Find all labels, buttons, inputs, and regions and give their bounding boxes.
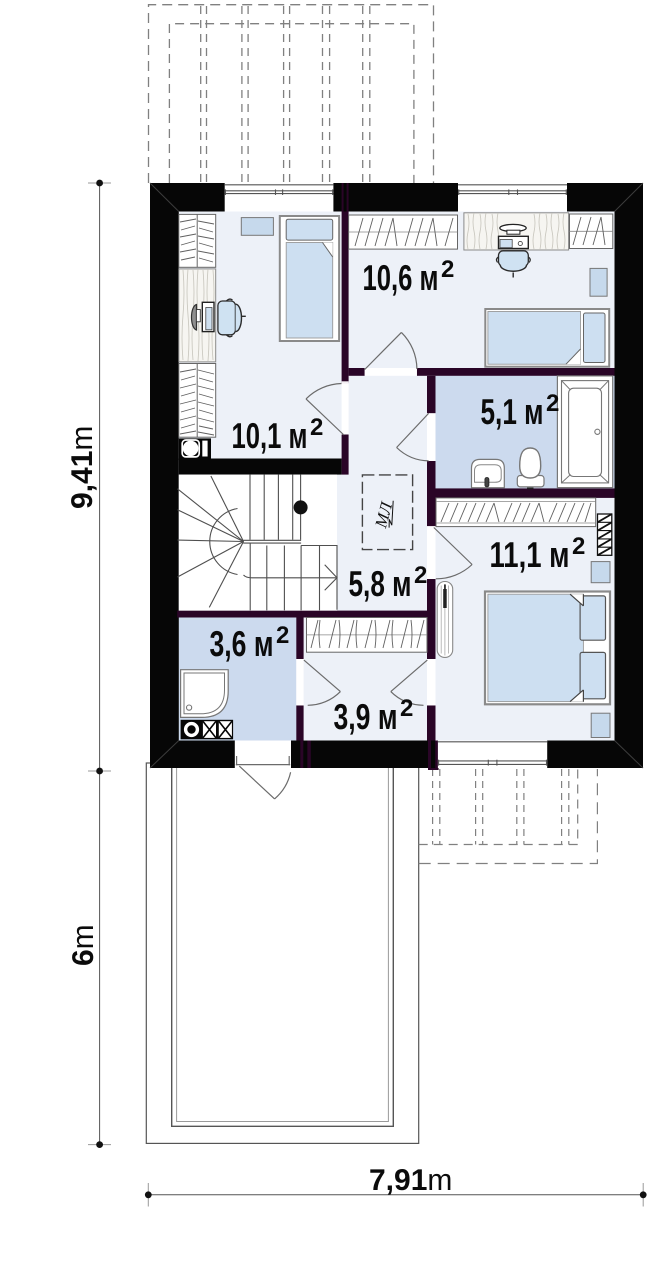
svg-text:2: 2 (572, 533, 585, 560)
svg-text:5,8 м: 5,8 м (349, 563, 412, 604)
svg-text:2: 2 (546, 390, 559, 417)
svg-text:2: 2 (414, 562, 427, 589)
svg-text:2: 2 (310, 414, 323, 441)
svg-text:9,41m: 9,41m (66, 426, 99, 509)
svg-text:7,91m: 7,91m (369, 1164, 452, 1197)
svg-text:2: 2 (400, 695, 413, 722)
svg-text:6m: 6m (67, 924, 100, 966)
svg-text:10,1 м: 10,1 м (232, 415, 308, 456)
svg-text:2: 2 (441, 256, 454, 283)
svg-text:11,1 м: 11,1 м (490, 534, 570, 575)
svg-text:3,6 м: 3,6 м (210, 623, 274, 664)
svg-text:3,9 м: 3,9 м (334, 696, 398, 737)
svg-text:5,1 м: 5,1 м (481, 391, 544, 432)
svg-text:10,6 м: 10,6 м (363, 257, 439, 298)
svg-text:2: 2 (276, 622, 289, 649)
